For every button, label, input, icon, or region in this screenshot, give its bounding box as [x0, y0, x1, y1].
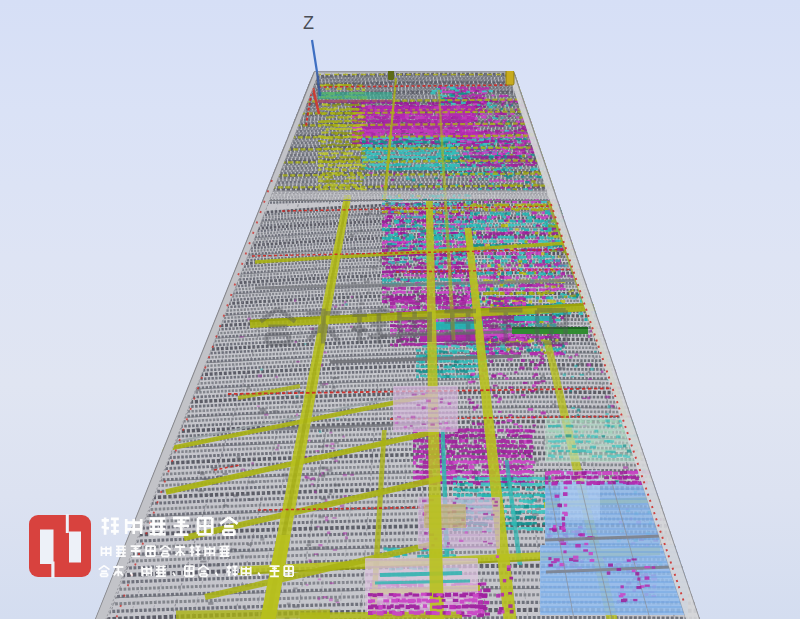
svg-text:Z: Z — [303, 13, 314, 33]
